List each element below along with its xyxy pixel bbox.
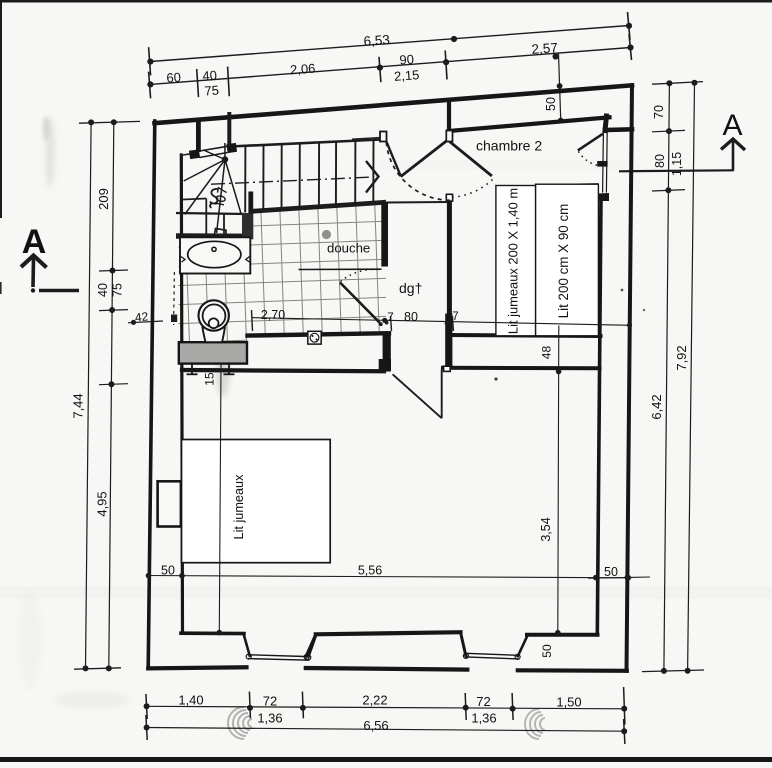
svg-text:1,36: 1,36 — [471, 711, 496, 726]
svg-text:2,22: 2,22 — [362, 693, 387, 708]
svg-text:75: 75 — [204, 83, 219, 99]
svg-text:A: A — [722, 109, 742, 142]
svg-text:75: 75 — [111, 283, 125, 297]
svg-text:2,57: 2,57 — [531, 40, 558, 57]
svg-text:Lit jumeaux 200 X 1,40 m: Lit jumeaux 200 X 1,40 m — [506, 188, 521, 334]
svg-text:72: 72 — [476, 694, 490, 709]
svg-text:42: 42 — [134, 309, 149, 324]
svg-text:80: 80 — [653, 154, 667, 168]
svg-text:40: 40 — [202, 68, 217, 84]
svg-text:6,56: 6,56 — [363, 718, 388, 733]
svg-text:80: 80 — [404, 310, 418, 324]
svg-text:7: 7 — [387, 312, 393, 324]
svg-text:6,42: 6,42 — [649, 394, 664, 419]
svg-text:72: 72 — [263, 694, 277, 709]
svg-text:48: 48 — [540, 346, 554, 360]
svg-text:60: 60 — [166, 70, 181, 86]
svg-text:2,15: 2,15 — [394, 67, 420, 84]
svg-text:40: 40 — [96, 283, 110, 297]
svg-text:1,50: 1,50 — [556, 695, 581, 710]
svg-text:50: 50 — [161, 564, 175, 578]
svg-text:Lit jumeaux: Lit jumeaux — [232, 474, 246, 540]
svg-text:Lit 200 cm X 90 cm: Lit 200 cm X 90 cm — [556, 204, 571, 319]
svg-text:2,70: 2,70 — [261, 308, 285, 322]
svg-text:209: 209 — [96, 188, 111, 210]
svg-text:50: 50 — [540, 644, 554, 658]
svg-text:6,53: 6,53 — [363, 32, 390, 49]
svg-text:1,36: 1,36 — [257, 711, 282, 726]
svg-text:15: 15 — [203, 372, 217, 386]
svg-text:90: 90 — [399, 52, 414, 68]
svg-text:3,54: 3,54 — [539, 517, 553, 541]
svg-text:1,15: 1,15 — [670, 152, 684, 176]
svg-text:dg†: dg† — [399, 280, 422, 296]
svg-text:7,44: 7,44 — [71, 393, 86, 418]
svg-text:50: 50 — [544, 97, 558, 111]
svg-text:douche: douche — [327, 241, 370, 256]
svg-text:chambre 2: chambre 2 — [476, 138, 542, 154]
svg-text:50: 50 — [604, 565, 618, 579]
svg-text:7,92: 7,92 — [674, 345, 689, 370]
svg-text:5,56: 5,56 — [358, 564, 382, 578]
svg-text:1,40: 1,40 — [178, 693, 203, 708]
svg-text:7: 7 — [452, 311, 458, 323]
svg-text:2,06: 2,06 — [290, 61, 316, 78]
svg-text:4,95: 4,95 — [95, 491, 110, 516]
svg-text:70: 70 — [652, 105, 666, 119]
